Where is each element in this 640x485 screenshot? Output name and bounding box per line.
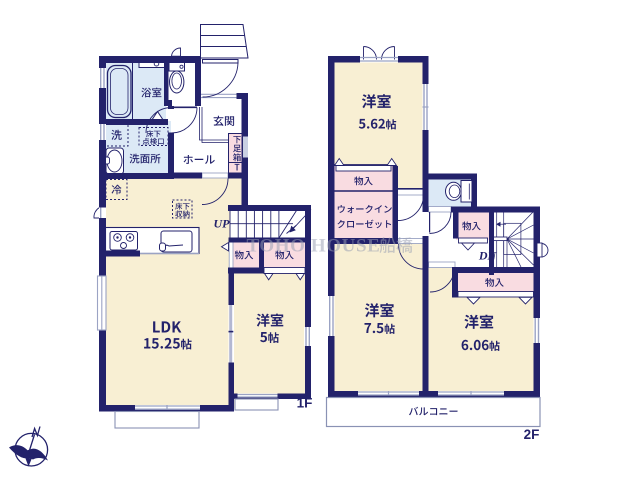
svg-text:TOHO HOUSE: TOHO HOUSE bbox=[247, 236, 381, 257]
svg-text:DN: DN bbox=[478, 249, 498, 263]
svg-text:UP: UP bbox=[214, 217, 231, 231]
svg-text:2F: 2F bbox=[524, 427, 540, 442]
svg-text:1F: 1F bbox=[297, 396, 313, 411]
